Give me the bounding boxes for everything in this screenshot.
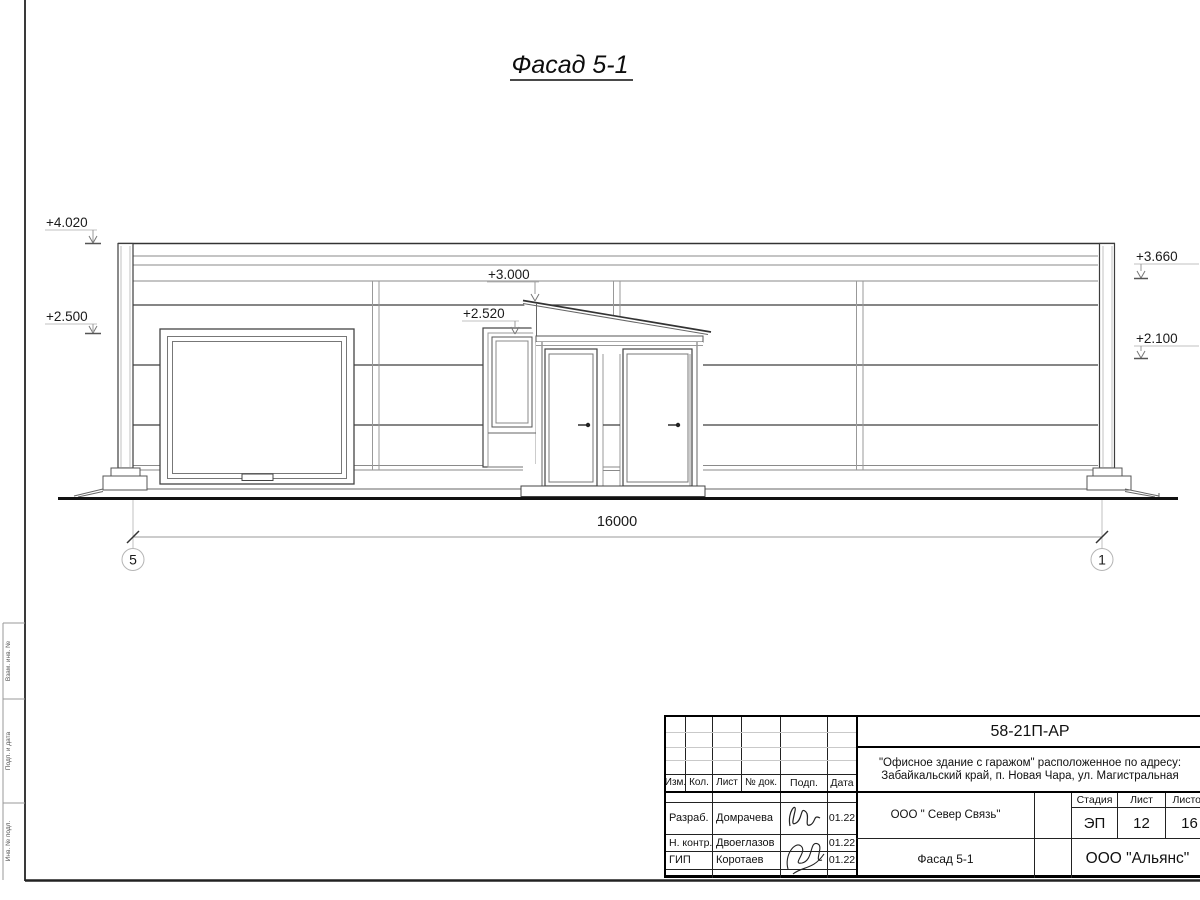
tb-stage-label: Стадия	[1072, 792, 1117, 807]
tb-stage-value: ЭП	[1072, 808, 1117, 838]
tb-drawing-name: Фасад 5-1	[857, 839, 1034, 878]
title-block: Изм. Кол. Лист № док. Подп. Дата Разраб.…	[664, 715, 1200, 878]
tb-col-doc: № док.	[742, 774, 780, 791]
tb-date-razrab: 01.22	[828, 802, 856, 834]
axis-label-5: 5	[129, 552, 137, 568]
door-handle-right-knob	[676, 423, 680, 427]
tb-sheet-label: Лист	[1118, 792, 1165, 807]
elevation-mark-4020: +4.020	[45, 215, 101, 244]
tb-project-description: "Офисное здание с гаражом" расположенное…	[857, 748, 1200, 791]
axis-label-1: 1	[1098, 552, 1106, 568]
ramp-right	[1125, 489, 1159, 497]
tb-sheets-label: Листов	[1166, 792, 1200, 807]
svg-text:+2.520: +2.520	[463, 306, 505, 321]
drawing-sheet: Взам. инв. № Подп. и дата Инв. № подл. Ф…	[0, 0, 1200, 900]
entrance-doors	[523, 342, 703, 487]
tb-line	[666, 747, 856, 748]
ramp-left	[74, 489, 103, 497]
door-handle-left-knob	[586, 423, 590, 427]
signatures	[780, 799, 827, 879]
tb-col-list: Лист	[713, 774, 741, 791]
tb-col-podp: Подп.	[781, 774, 827, 791]
tb-line	[666, 732, 856, 733]
garage-door	[160, 329, 354, 484]
tb-project-line1: "Офисное здание с гаражом" расположенное…	[879, 757, 1181, 770]
view-title: Фасад 5-1	[510, 51, 633, 80]
svg-text:+2.100: +2.100	[1136, 331, 1178, 346]
tb-line	[666, 869, 856, 870]
margin-label-podp: Подп. и дата	[5, 731, 12, 770]
tb-doc-code: 58-21П-АР	[857, 717, 1200, 746]
entrance-window	[483, 328, 540, 467]
tb-date-ncontr: 01.22	[828, 834, 856, 851]
tb-name-razrab: Домрачева	[713, 802, 780, 834]
tb-sheet-value: 12	[1118, 808, 1165, 838]
tb-sheets-value: 16	[1166, 808, 1200, 838]
margin-label-vzam: Взам. инв. №	[5, 641, 12, 681]
facade-linework	[58, 243, 1178, 499]
svg-text:+2.500: +2.500	[46, 309, 88, 324]
tb-project-line2: Забайкальский край, п. Новая Чара, ул. М…	[881, 770, 1179, 783]
svg-text:+4.020: +4.020	[46, 215, 88, 230]
tb-col-izm: Изм.	[666, 774, 685, 791]
tb-role-ncontr: Н. контр.	[666, 834, 712, 851]
tb-col-kol: Кол.	[686, 774, 712, 791]
tb-col-data: Дата	[828, 774, 856, 791]
dimension-16000: 16000 5 1	[122, 500, 1113, 571]
signature-razrab	[789, 807, 820, 826]
tb-client: ООО " Север Связь"	[857, 792, 1034, 838]
tb-company: ООО "Альянс"	[1072, 839, 1200, 878]
tb-role-gip: ГИП	[666, 851, 712, 869]
view-title-text: Фасад 5-1	[511, 51, 628, 79]
margin-label-inv: Инв. № подл.	[5, 821, 12, 862]
tb-line	[666, 760, 856, 761]
porch-slab	[521, 486, 705, 497]
dimension-value: 16000	[597, 514, 637, 530]
signature-ncontr-gip	[787, 843, 824, 874]
svg-text:+3.000: +3.000	[488, 267, 530, 282]
elevation-mark-2100: +2.100	[1134, 331, 1199, 359]
elevation-mark-3660: +3.660	[1134, 249, 1199, 279]
tb-date-gip: 01.22	[828, 851, 856, 869]
tb-name-gip: Коротаев	[713, 851, 780, 869]
tb-name-ncontr: Двоеглазов	[713, 834, 780, 851]
garage-door-handle	[242, 474, 273, 481]
svg-text:+3.660: +3.660	[1136, 249, 1178, 264]
elevation-mark-2500: +2.500	[45, 309, 101, 334]
tb-line	[1034, 792, 1035, 878]
tb-role-razrab: Разраб.	[666, 802, 712, 834]
